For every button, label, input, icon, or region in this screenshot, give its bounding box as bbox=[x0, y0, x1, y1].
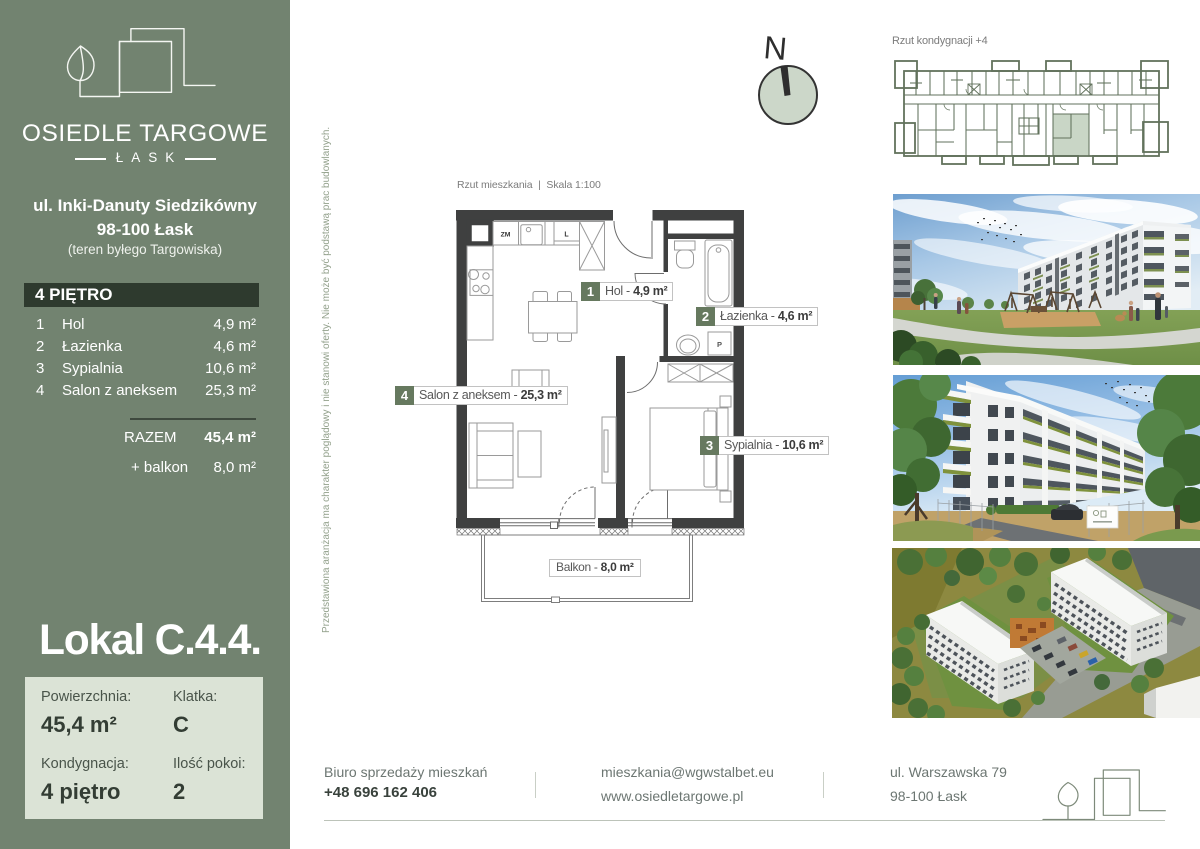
svg-text:L: L bbox=[564, 232, 569, 239]
svg-text:P: P bbox=[717, 340, 722, 349]
svg-text:ZM: ZM bbox=[501, 232, 511, 239]
svg-text:N: N bbox=[762, 29, 788, 67]
